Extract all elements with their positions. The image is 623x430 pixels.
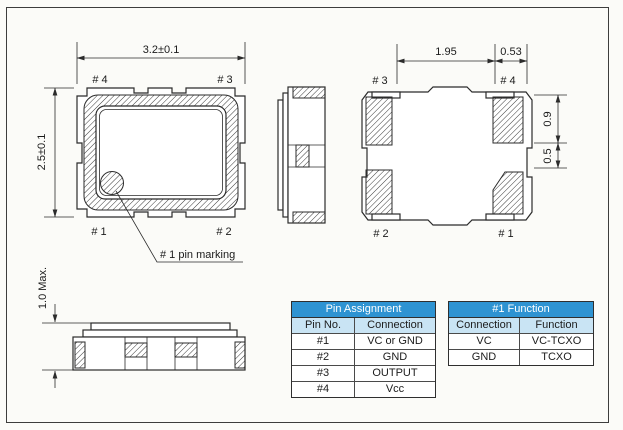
connection-cell: Vcc [355,382,435,397]
pin1-function-table: #1 Function Connection Function VC VC-TC… [448,301,594,366]
pad-gap-dim-label: 1.95 [435,46,456,58]
width-dim-label: 3.2±0.1 [143,44,180,56]
pin-label-2: # 2 [373,228,388,240]
pad-width-dim-label: 0.53 [500,46,521,58]
lid-layer-inner [283,93,288,217]
function-cell: VC-TCXO [520,334,593,349]
end-terminal-right [235,342,245,368]
pad-2 [366,170,392,214]
terminal-bottom [293,212,325,223]
end-terminal-left [75,342,85,368]
pin-assignment-header-row: Pin No. Connection [292,318,435,334]
pad-3 [366,97,392,145]
terminal-top [293,87,325,98]
drawing-sheet: # 1 pin marking # 4 # 3 # 1 # 2 3.2±0.1 … [0,0,623,430]
lid-layer-outer [278,100,283,210]
pin-label-1: # 1 [91,226,106,238]
connection-cell: VC or GND [355,334,435,349]
column-header: Connection [355,318,435,333]
edge-metallization [372,214,400,220]
pin-label-3: # 3 [217,74,232,86]
pin1-marking-note: # 1 pin marking [160,249,235,261]
inner-terminal [175,343,197,357]
side-profile-view [278,87,325,223]
pin-no-cell: #2 [292,350,355,365]
pin-label-3: # 3 [372,75,387,87]
pin-label-4: # 4 [500,75,515,87]
bottom-view: # 3 # 4 # 2 # 1 1.95 0.53 0.9 0.5 [362,44,567,240]
mid-terminal [296,145,309,167]
table-row: GND TCXO [449,350,593,365]
table-row: #4 Vcc [292,382,435,397]
column-header: Connection [449,318,520,333]
pad-height-dim-label: 0.9 [542,111,554,126]
column-header: Function [520,318,593,333]
pin-assignment-title: Pin Assignment [292,302,435,318]
pin-label-2: # 2 [216,226,231,238]
table-row: VC VC-TCXO [449,334,593,350]
lid-top-slab [91,323,230,330]
max-height-dim-label: 1.0 Max. [37,267,49,309]
pin-no-cell: #4 [292,382,355,397]
connection-cell: GND [355,350,435,365]
column-header: Pin No. [292,318,355,333]
pin1-function-header-row: Connection Function [449,318,593,334]
pin-label-1: # 1 [498,228,513,240]
pin-assignment-table: Pin Assignment Pin No. Connection #1 VC … [291,301,436,398]
top-view: # 1 pin marking # 4 # 3 # 1 # 2 3.2±0.1 … [36,42,245,262]
pin-no-cell: #1 [292,334,355,349]
pin1-marking-dot [101,172,124,195]
pin1-function-title: #1 Function [449,302,593,318]
connection-cell: GND [449,350,520,365]
table-row: #1 VC or GND [292,334,435,350]
pad-offset-dim-label: 0.5 [542,148,554,163]
pin-label-4: # 4 [92,74,107,86]
pad-4 [493,97,523,143]
inner-terminal [125,343,147,357]
table-row: #2 GND [292,350,435,366]
height-dim-label: 2.5±0.1 [36,134,48,171]
table-row: #3 OUTPUT [292,366,435,382]
edge-metallization [486,214,514,220]
pin-no-cell: #3 [292,366,355,381]
lid-bottom-slab [83,330,237,337]
connection-cell: OUTPUT [355,366,435,381]
function-cell: TCXO [520,350,593,365]
connection-cell: VC [449,334,520,349]
front-profile-view: 1.0 Max. [37,267,245,388]
profile-body [73,337,245,370]
